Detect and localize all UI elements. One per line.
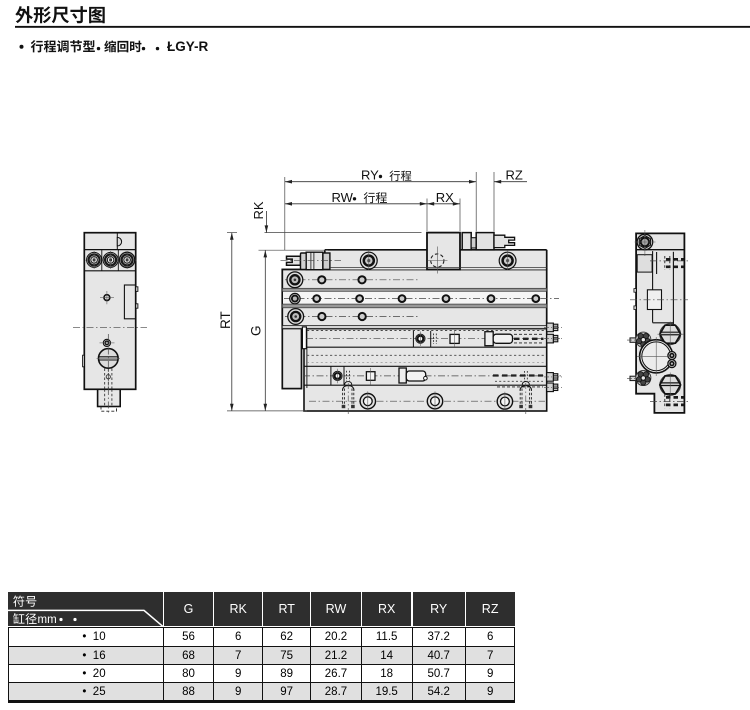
svg-text:RW: RW [332, 190, 354, 205]
svg-text:RX: RX [436, 190, 454, 205]
svg-text:G: G [249, 325, 264, 336]
svg-text:RY: RY [361, 168, 379, 183]
svg-text:ŁGY-R: ŁGY-R [167, 39, 209, 54]
svg-text:mm: mm [38, 614, 57, 626]
svg-text:RK: RK [251, 201, 266, 219]
svg-text:RZ: RZ [506, 168, 523, 183]
svg-text:RT: RT [218, 311, 233, 329]
